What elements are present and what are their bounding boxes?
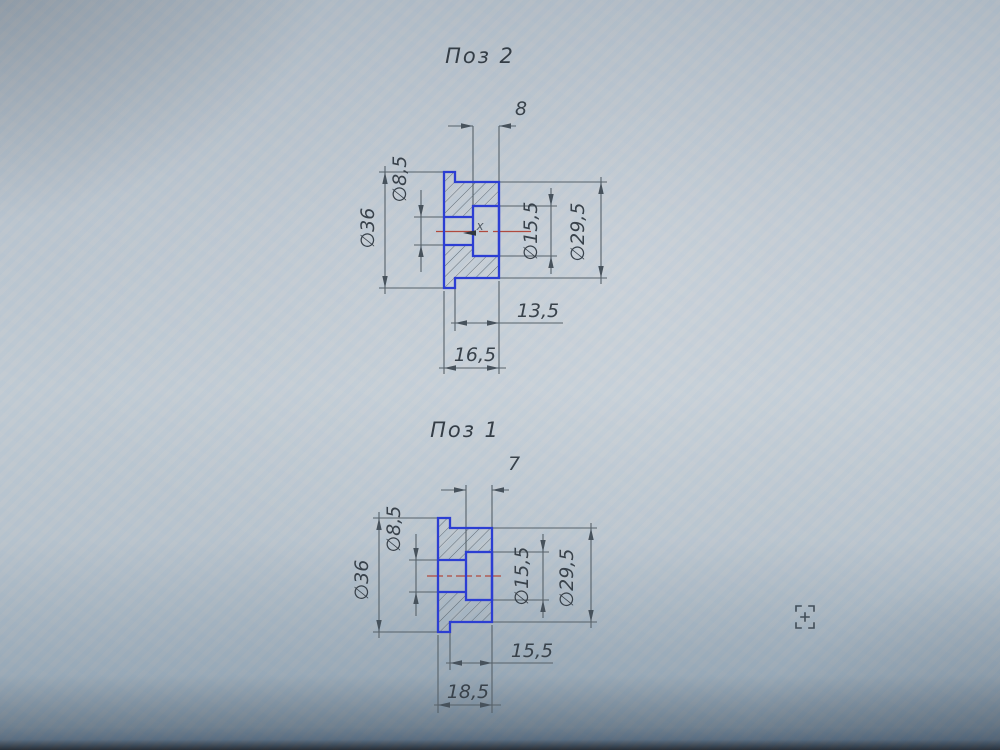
pos2-dim-small-bore-label: ∅8,5 xyxy=(389,156,411,203)
pos2-dim-flange-dia-label: ∅36 xyxy=(357,208,379,249)
pos1-dim-small-bore-group[interactable] xyxy=(409,534,438,616)
drawing-pos1-title: Поз 1 xyxy=(430,418,500,442)
pos1-dim-total-len-label: 18,5 xyxy=(447,681,489,703)
pos2-dim-depth-label: 8 xyxy=(515,98,527,120)
pos2-dim-body-dia-label: ∅29,5 xyxy=(567,203,589,262)
pos2-dim-total-len-label: 16,5 xyxy=(454,344,496,366)
pos2-dim-step-len-label: 13,5 xyxy=(517,300,559,322)
drawing-pos2-title: Поз 2 xyxy=(445,44,515,68)
pos1-dim-step-len-label: 15,5 xyxy=(511,640,553,662)
drawing-pos1: Поз 1 7 ∅36 ∅8,5 xyxy=(351,418,597,713)
pos2-hatch-section xyxy=(444,172,499,288)
pos1-dim-body-dia-group[interactable] xyxy=(492,523,597,628)
pos1-dim-small-bore-label: ∅8,5 xyxy=(383,506,405,553)
zoom-crosshair-icon xyxy=(796,606,814,628)
drawing-pos2: Поз 2 8 ∅36 ∅8,5 xyxy=(357,44,607,374)
pos1-dim-body-dia-label: ∅29,5 xyxy=(556,549,578,608)
pos1-dim-bore-dia-label: ∅15,5 xyxy=(511,547,533,606)
pos1-dim-flange-dia-label: ∅36 xyxy=(351,560,373,601)
monitor-screen: Поз 2 8 ∅36 ∅8,5 xyxy=(0,0,1000,750)
pos1-dim-depth-label: 7 xyxy=(508,453,520,475)
snap-x-marker: х xyxy=(475,219,484,233)
cad-canvas[interactable]: Поз 2 8 ∅36 ∅8,5 xyxy=(0,0,1000,750)
